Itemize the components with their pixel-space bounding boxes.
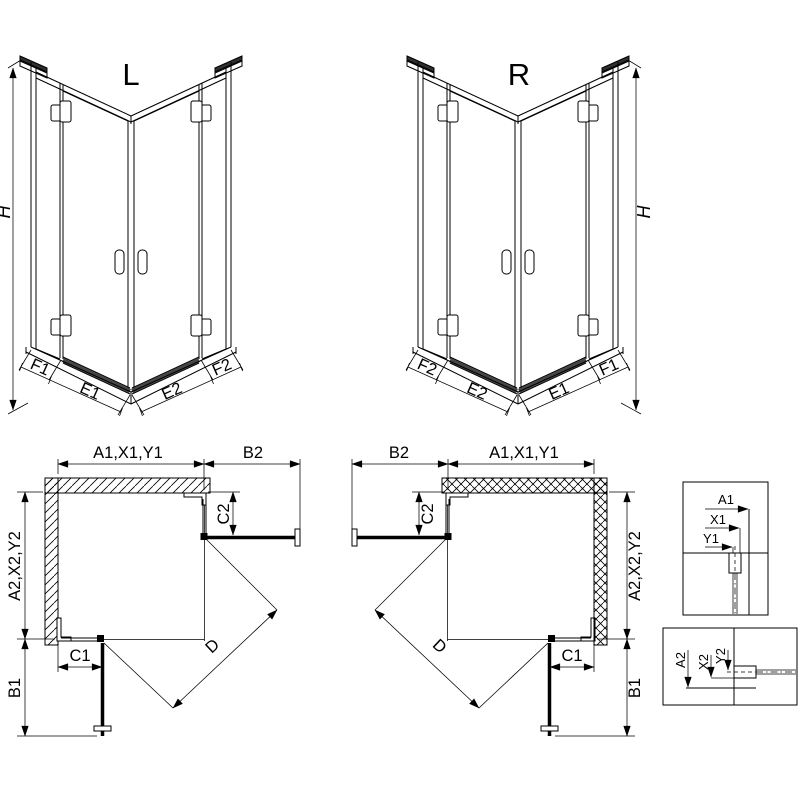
dim-depth-left: A2,X2,Y2 — [6, 531, 24, 601]
dim-depth-right: A2,X2,Y2 — [626, 531, 644, 601]
dim-diagonal-left: D — [202, 636, 223, 657]
technical-drawing-sheet: L H F1 E1 E2 F2 R H F2 E2 E1 F1 A1,X1,Y1… — [0, 0, 800, 800]
segment-label-e2-left: E2 — [159, 379, 185, 404]
plan-view-right-walls — [442, 478, 607, 645]
hinge-icon — [97, 635, 104, 642]
door-handle-icon — [115, 250, 124, 274]
door-handle-icon — [295, 529, 300, 546]
segment-label-f1-left: F1 — [28, 355, 53, 379]
wall-side — [594, 478, 607, 645]
detail-label-x1: X1 — [710, 512, 726, 527]
dim-fixed-side-right: C1 — [561, 647, 582, 665]
detail-label-y1: Y1 — [703, 531, 719, 546]
detail-label-a1: A1 — [718, 492, 734, 507]
height-label-right: H — [634, 205, 654, 219]
segment-label-e1-right: E1 — [546, 379, 572, 404]
shower-enclosure-diagram: L H F1 E1 E2 F2 R H F2 E2 E1 F1 A1,X1,Y1… — [0, 0, 800, 800]
dim-fixed-return-left: C2 — [215, 503, 233, 524]
plan-view-left-linework — [17, 459, 300, 736]
dim-door-depth-right: B1 — [626, 678, 644, 698]
detail-label-a2: A2 — [673, 652, 688, 668]
height-label-left: H — [0, 205, 14, 219]
detail-label-y2: Y2 — [713, 648, 728, 664]
dim-diagonal-right: D — [429, 636, 450, 657]
dim-fixed-side-left: C1 — [69, 647, 90, 665]
wall-top — [442, 478, 607, 493]
wall-side — [45, 478, 58, 645]
dim-fixed-return-right: C2 — [419, 503, 437, 524]
wall-top — [45, 478, 210, 493]
segment-label-e2-right: E2 — [464, 379, 490, 404]
segment-label-f2-right: F2 — [415, 355, 440, 379]
segment-label-f2-left: F2 — [210, 355, 235, 379]
labels: L H F1 E1 E2 F2 R H F2 E2 E1 F1 A1,X1,Y1… — [0, 57, 734, 698]
door-handle-icon — [138, 250, 147, 274]
variant-label-right: R — [508, 57, 530, 92]
dim-door-width-left: B2 — [243, 444, 263, 462]
segment-label-e1-left: E1 — [77, 379, 103, 404]
dim-width-right: A1,X1,Y1 — [489, 444, 559, 462]
door-handle-icon — [94, 726, 111, 731]
plan-view-right-linework — [352, 459, 635, 736]
dim-door-depth-left: B1 — [6, 678, 24, 698]
dim-door-width-right: B2 — [389, 444, 409, 462]
dim-width-left: A1,X1,Y1 — [93, 444, 163, 462]
detail-label-x2: X2 — [696, 654, 711, 670]
segment-label-f1-right: F1 — [597, 355, 622, 379]
variant-label-left: L — [122, 57, 139, 92]
